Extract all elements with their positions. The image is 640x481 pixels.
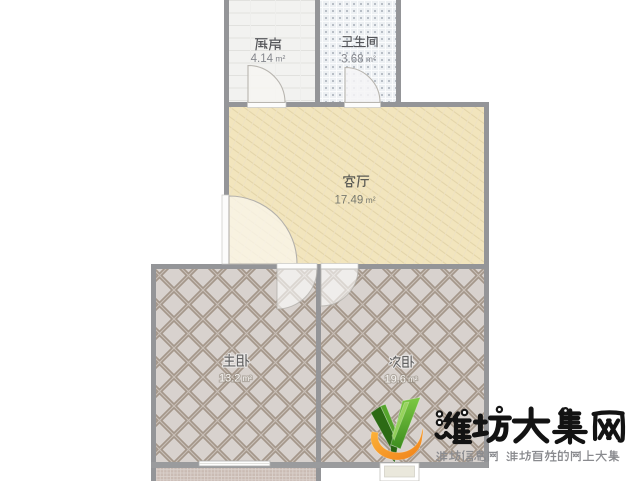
svg-text:19.6 m²: 19.6 m² bbox=[385, 374, 418, 386]
svg-text:17.49 m²: 17.49 m² bbox=[334, 195, 375, 207]
svg-text:13.2 m²: 13.2 m² bbox=[219, 373, 252, 385]
svg-text:4.14 m²: 4.14 m² bbox=[251, 53, 286, 65]
svg-text:3.68 m²: 3.68 m² bbox=[341, 54, 376, 66]
